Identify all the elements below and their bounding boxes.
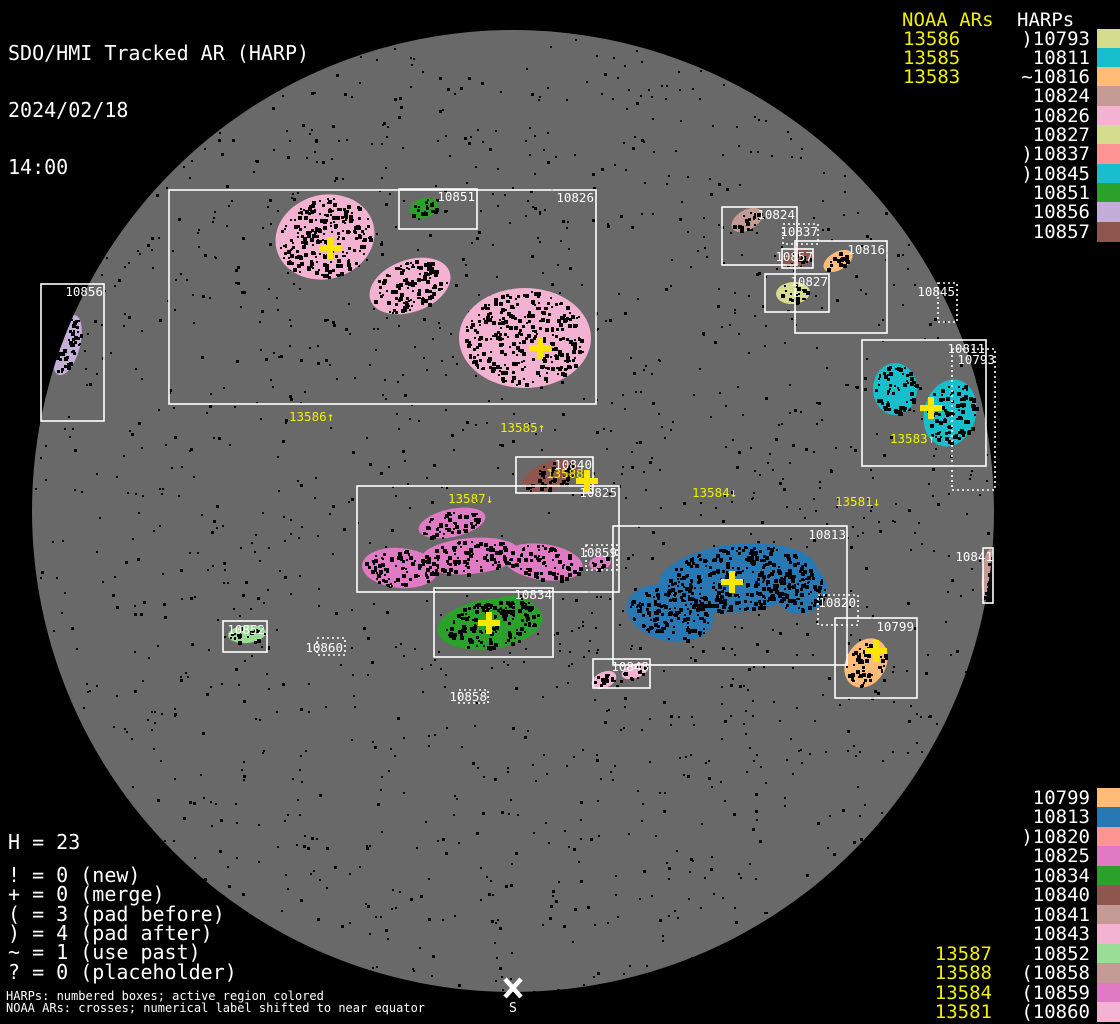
noaa-ars-column-header: NOAA ARs — [902, 11, 994, 30]
plot-date: 2024/02/18 — [8, 101, 309, 120]
active-region-blob — [873, 363, 917, 415]
harp-box-label-10813: 10813 — [808, 527, 846, 542]
harp-box-label-10860: 10860 — [305, 640, 343, 655]
harp-box-label-10820: 10820 — [818, 595, 856, 610]
noaa-ar-label: 13581↓ — [835, 494, 880, 509]
harp-box-label-10816: 10816 — [847, 242, 885, 257]
footer-line2: NOAA ARs: crosses; numerical label shift… — [6, 1002, 425, 1014]
harp-box-label-10843: 10843 — [611, 659, 649, 674]
noaa-ar-label: 13586↑ — [289, 409, 334, 424]
noaa-ar-label: 13583↑ — [890, 431, 935, 446]
south-pole-label: S — [509, 1001, 517, 1016]
harp-box-label-10857: 10857 — [775, 249, 813, 264]
harp-box-label-10851: 10851 — [437, 189, 475, 204]
harp-count: H = 23 — [8, 830, 80, 854]
harp-box-label-10859: 10859 — [579, 545, 617, 560]
noaa-ar-label: 13584↓ — [692, 485, 737, 500]
harp-box-label-10826: 10826 — [556, 190, 594, 205]
noaa-ar-label: 13585↑ — [500, 420, 545, 435]
harp-box-label-10837: 10837 — [780, 224, 818, 239]
harp-box-label-10793: 10793 — [957, 352, 995, 367]
title-block: SDO/HMI Tracked AR (HARP) 2024/02/18 14:… — [8, 6, 309, 215]
noaa-ar-label: 13588↓ — [546, 466, 591, 481]
plot-time: 14:00 — [8, 158, 309, 177]
noaa-ar-label: 13587↓ — [448, 491, 493, 506]
harp-box-label-10834: 10834 — [514, 587, 552, 602]
harp-box-label-10824: 10824 — [757, 207, 795, 222]
harp-box-label-10858: 10858 — [449, 689, 487, 704]
plot-title: SDO/HMI Tracked AR (HARP) — [8, 44, 309, 63]
harp-box-label-10841: 10841 — [955, 549, 993, 564]
harp-box-label-10827: 10827 — [790, 274, 828, 289]
sdo-hmi-harp-visualization: 1082610851108561082410837108571081610827… — [0, 0, 1120, 1024]
harp-box-label-10852: 10852 — [227, 622, 265, 637]
harp-box-label-10856: 10856 — [65, 284, 103, 299]
harp-box-label-10799: 10799 — [876, 619, 914, 634]
harps-column-header: HARPs — [1017, 11, 1074, 30]
harp-box-label-10845: 10845 — [917, 284, 955, 299]
